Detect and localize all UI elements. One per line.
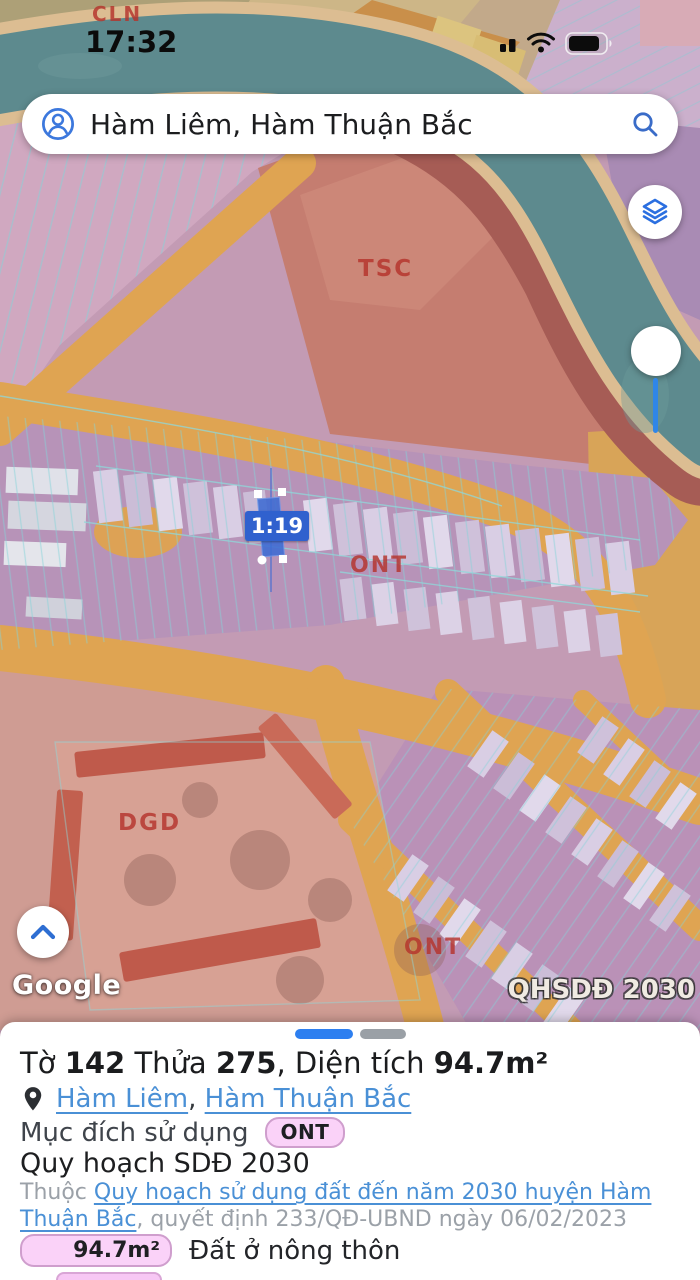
- parcel-number: 275: [216, 1046, 277, 1080]
- title-word: Thửa: [125, 1046, 216, 1080]
- location-row: Hàm Liêm, Hàm Thuận Bắc: [22, 1084, 411, 1114]
- plan-detail-suffix: , quyết định 233/QĐ-UBND ngày 06/02/2023: [136, 1207, 627, 1232]
- zone-label-tsc: TSC: [358, 256, 413, 282]
- search-input[interactable]: [90, 108, 630, 141]
- google-watermark: Google: [12, 970, 121, 1001]
- plan-year-badge: QHSDĐ 2030: [508, 975, 695, 1005]
- title-word: Tờ: [20, 1046, 65, 1080]
- location-separator: ,: [188, 1084, 205, 1114]
- area-badge: 94.7m²: [20, 1234, 172, 1267]
- parcel-title: Tờ 142 Thửa 275, Diện tích 94.7m²: [20, 1046, 548, 1080]
- zone-label-cln: CLN: [92, 2, 142, 26]
- title-word: , Diện tích: [276, 1046, 433, 1080]
- zone-label-ont: ONT: [350, 553, 408, 578]
- page-indicator-active[interactable]: [295, 1029, 353, 1039]
- page-indicator-inactive[interactable]: [360, 1029, 406, 1039]
- area-value: 94.7m²: [434, 1046, 548, 1080]
- sheet-number: 142: [65, 1046, 126, 1080]
- layers-icon: [638, 195, 672, 229]
- plan-detail-prefix: Thuộc: [20, 1180, 94, 1205]
- app-screen: CLN TSC ONT DGD ONT 1:19 Google QHSDĐ 20…: [0, 0, 700, 1280]
- plan-heading: Quy hoạch SDĐ 2030: [20, 1148, 310, 1179]
- purpose-row: Mục đích sử dụng ONT: [20, 1117, 345, 1148]
- opacity-slider-thumb[interactable]: [631, 326, 681, 376]
- search-icon[interactable]: [630, 109, 660, 139]
- wifi-icon: [526, 32, 556, 54]
- area-row: 94.7m² Đất ở nông thôn: [20, 1234, 400, 1267]
- layers-button[interactable]: [628, 185, 682, 239]
- cell-signal-icon: [500, 32, 517, 54]
- area-label: Đất ở nông thôn: [189, 1236, 400, 1266]
- battery-icon: [565, 32, 613, 55]
- info-sheet: Tờ 142 Thửa 275, Diện tích 94.7m² Hàm Li…: [0, 1022, 700, 1280]
- location-link-commune[interactable]: Hàm Liêm: [56, 1084, 188, 1114]
- opacity-slider-track[interactable]: [653, 378, 658, 433]
- search-bar[interactable]: [22, 94, 678, 154]
- expand-sheet-button[interactable]: [17, 906, 69, 958]
- status-time: 17:32: [85, 25, 177, 59]
- account-icon[interactable]: [40, 106, 76, 142]
- zone-label-dgd: DGD: [118, 810, 181, 836]
- satellite-map-layer: [0, 0, 700, 1030]
- chevron-up-icon: [26, 921, 60, 943]
- plan-detail: Thuộc Quy hoạch sử dụng đất đến năm 2030…: [20, 1179, 682, 1233]
- page-indicator: [0, 1029, 700, 1039]
- zone-label-ont-2: ONT: [404, 935, 462, 960]
- status-icons: [500, 30, 650, 56]
- location-pin-icon: [22, 1085, 44, 1113]
- next-area-badge-partial: [56, 1272, 162, 1280]
- purpose-badge: ONT: [265, 1117, 346, 1148]
- map[interactable]: CLN TSC ONT DGD ONT 1:19 Google QHSDĐ 20…: [0, 0, 700, 1030]
- selected-parcel-label: 1:19: [245, 511, 309, 541]
- location-link-district[interactable]: Hàm Thuận Bắc: [205, 1084, 412, 1114]
- purpose-label: Mục đích sử dụng: [20, 1118, 249, 1148]
